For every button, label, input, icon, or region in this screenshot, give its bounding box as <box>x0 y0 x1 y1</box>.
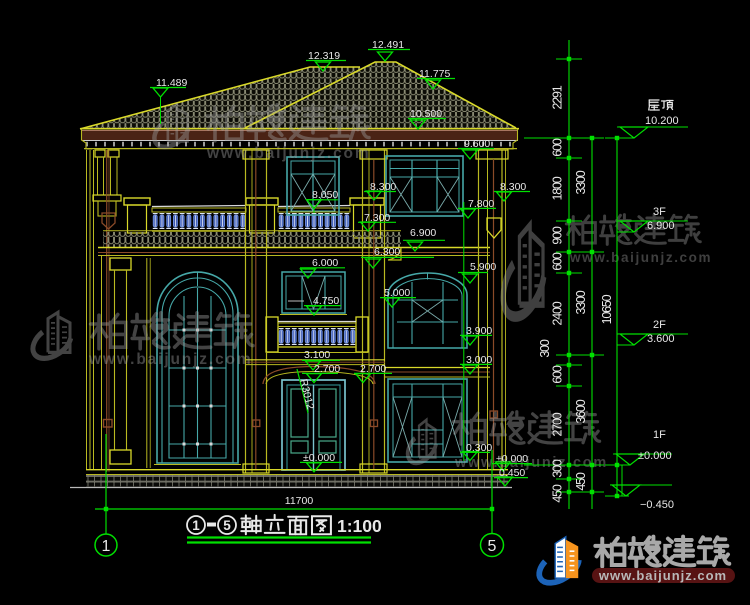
svg-text:1800: 1800 <box>551 176 565 200</box>
svg-text:10650: 10650 <box>600 294 614 324</box>
svg-text:www.baijunjz.com: www.baijunjz.com <box>206 145 371 162</box>
svg-text:3.100: 3.100 <box>304 349 330 361</box>
svg-text:300: 300 <box>538 339 552 358</box>
svg-text:5: 5 <box>488 538 497 555</box>
svg-text:6.900: 6.900 <box>647 220 675 232</box>
svg-text:5.900: 5.900 <box>470 261 496 273</box>
svg-text:3F: 3F <box>653 206 666 218</box>
svg-text:600: 600 <box>551 138 565 157</box>
svg-text:−0.450: −0.450 <box>640 499 674 511</box>
svg-text:11700: 11700 <box>285 495 314 507</box>
svg-text:900: 900 <box>551 226 565 245</box>
svg-text:300: 300 <box>551 459 565 478</box>
svg-text:450: 450 <box>551 484 565 503</box>
svg-text:5: 5 <box>223 518 231 533</box>
svg-text:6.300: 6.300 <box>374 246 400 258</box>
svg-text:2F: 2F <box>653 319 666 331</box>
svg-text:www.baijunjz.com: www.baijunjz.com <box>598 568 727 583</box>
svg-text:1: 1 <box>102 538 111 555</box>
svg-text:1:100: 1:100 <box>337 516 382 536</box>
svg-text:2700: 2700 <box>551 412 565 436</box>
svg-text:1F: 1F <box>653 429 666 441</box>
svg-text:2291: 2291 <box>551 85 565 109</box>
svg-text:1: 1 <box>192 518 200 533</box>
svg-text:2400: 2400 <box>551 301 565 325</box>
svg-text:450: 450 <box>574 472 588 491</box>
svg-text:6.900: 6.900 <box>410 227 436 239</box>
svg-text:3300: 3300 <box>574 290 588 314</box>
svg-text:10.200: 10.200 <box>645 115 679 127</box>
svg-text:600: 600 <box>551 365 565 384</box>
svg-text:±0.000: ±0.000 <box>638 450 672 462</box>
svg-text:3600: 3600 <box>574 399 588 423</box>
svg-text:3300: 3300 <box>574 170 588 194</box>
svg-text:600: 600 <box>551 252 565 271</box>
svg-text:3.600: 3.600 <box>647 333 675 345</box>
svg-text:www.baijunjz.com: www.baijunjz.com <box>88 351 253 368</box>
